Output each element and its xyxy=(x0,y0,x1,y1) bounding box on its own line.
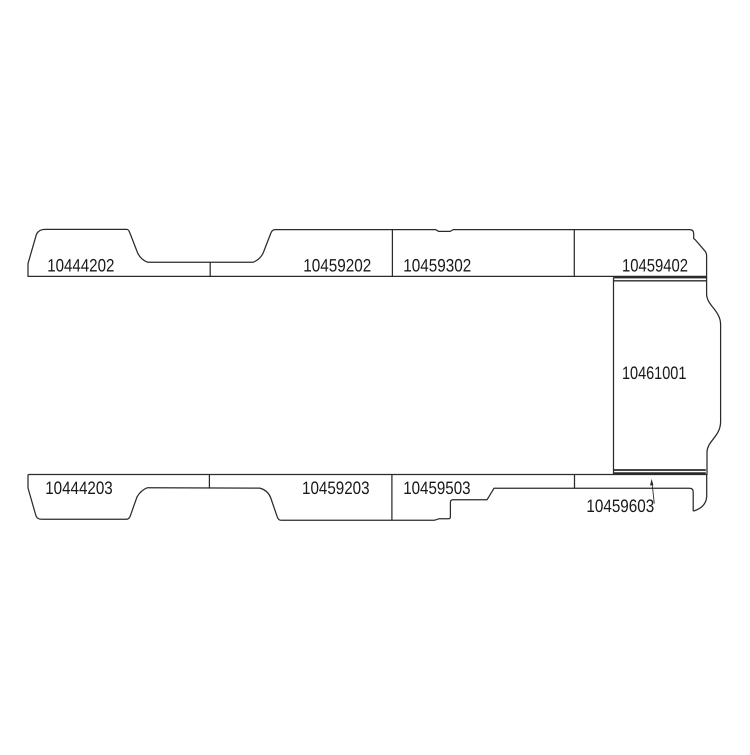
svg-text:10444202: 10444202 xyxy=(47,255,114,275)
svg-text:10459503: 10459503 xyxy=(403,478,470,498)
svg-text:10459402: 10459402 xyxy=(622,255,688,275)
svg-text:10459603: 10459603 xyxy=(586,496,654,516)
svg-text:10459302: 10459302 xyxy=(403,255,471,275)
svg-text:10444203: 10444203 xyxy=(45,478,113,498)
svg-text:10459203: 10459203 xyxy=(302,478,370,498)
svg-text:10459202: 10459202 xyxy=(303,255,371,275)
svg-text:10461001: 10461001 xyxy=(622,363,687,383)
